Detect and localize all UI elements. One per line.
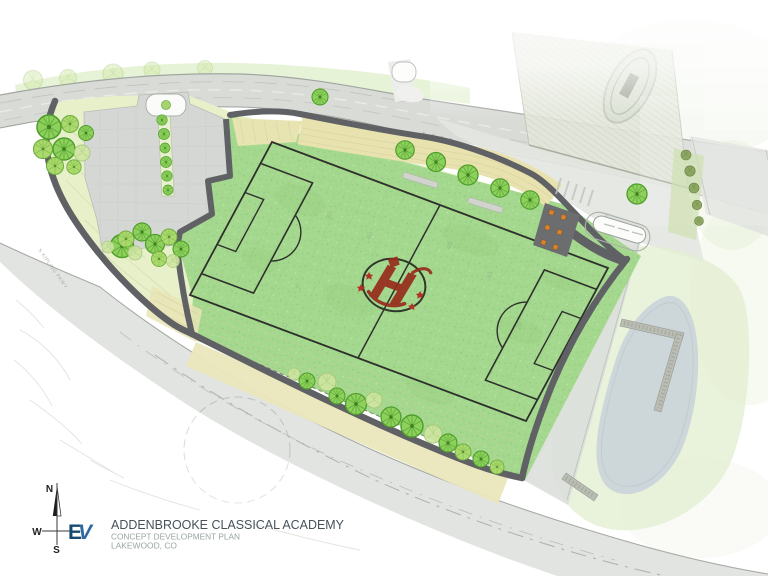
svg-text:S: S [53, 545, 60, 556]
svg-text:W: W [32, 527, 42, 538]
svg-text:N: N [46, 484, 53, 495]
svg-text:LAKEWOOD, CO: LAKEWOOD, CO [111, 542, 177, 551]
svg-text:V: V [78, 521, 94, 544]
svg-text:CONCEPT DEVELOPMENT PLAN: CONCEPT DEVELOPMENT PLAN [111, 533, 240, 542]
svg-text:ADDENBROOKE CLASSICAL ACADEMY: ADDENBROOKE CLASSICAL ACADEMY [111, 518, 345, 532]
